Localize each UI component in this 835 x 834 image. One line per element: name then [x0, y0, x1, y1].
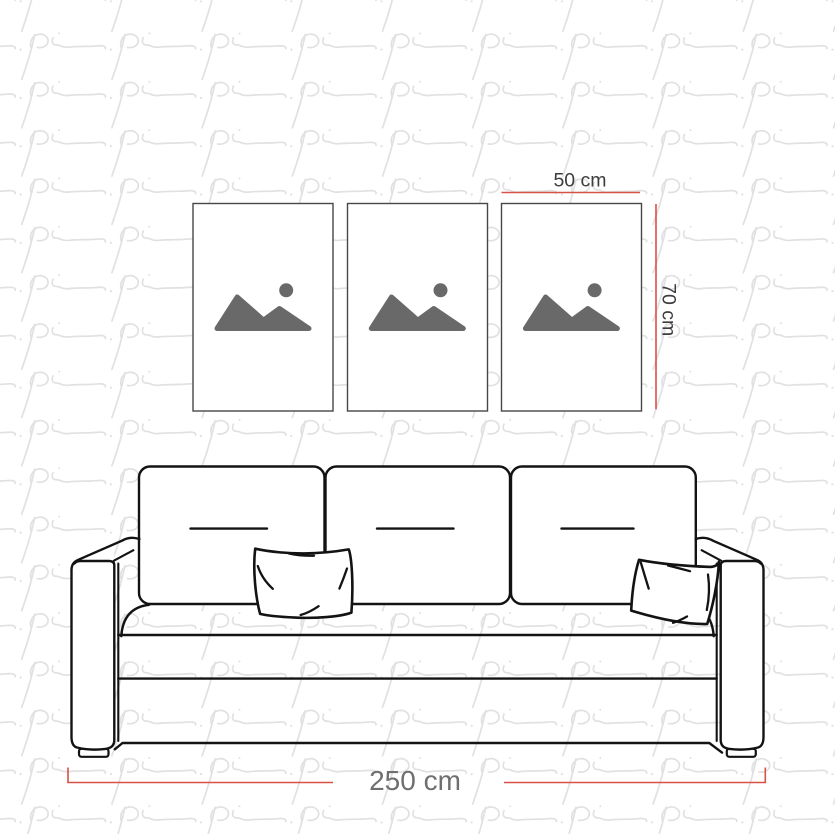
svg-text:50 cm: 50 cm: [553, 170, 606, 192]
svg-text:250 cm: 250 cm: [369, 765, 461, 796]
svg-text:70 cm: 70 cm: [657, 283, 679, 336]
